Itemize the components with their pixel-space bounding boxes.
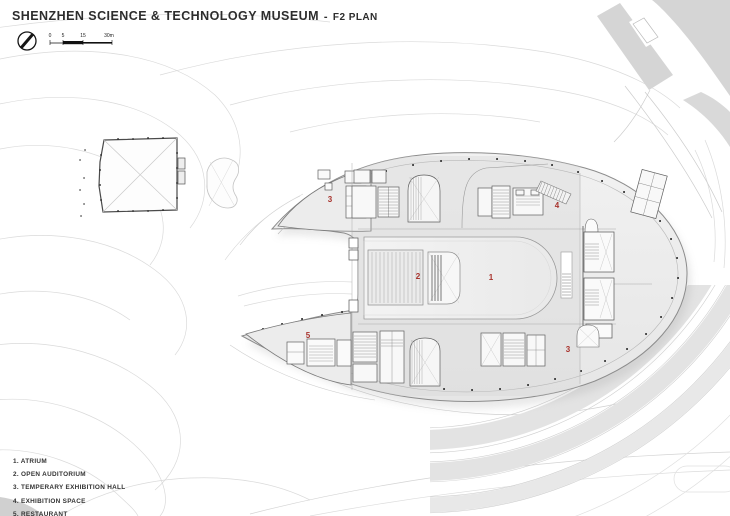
plan-marker-exhibition-space: 4 [555, 202, 559, 210]
drawing-title: SHENZHEN SCIENCE & TECHNOLOGY MUSEUM - F… [12, 7, 378, 25]
scale-bar: 0 5 15 30m [49, 33, 114, 45]
legend-item-restaurant: 5. RESTAURANT [13, 508, 125, 516]
title-separator: - [324, 11, 328, 23]
title-main: SHENZHEN SCIENCE & TECHNOLOGY MUSEUM [12, 9, 319, 23]
legend-item-atrium: 1. ATRIUM [13, 455, 125, 468]
plan-marker-atrium: 1 [489, 274, 493, 282]
scale-label-5: 5 [62, 33, 65, 39]
legend-item-exhibition-space: 4. EXHIBITION SPACE [13, 495, 125, 508]
north-arrow-icon [18, 32, 36, 50]
open-auditorium [368, 250, 460, 305]
legend-item-open-auditorium: 2. OPEN AUDITORIUM [13, 468, 125, 481]
slab-edge-boxes [349, 238, 358, 312]
floor-plan-canvas: 0 5 15 30m SHENZHEN SCIENCE & TECHNOLOGY… [0, 0, 730, 516]
plan-marker-temporary-exhibition-lower: 3 [566, 346, 570, 354]
plan-marker-open-auditorium: 2 [416, 273, 420, 281]
right-core-stack [583, 219, 614, 338]
plan-marker-restaurant: 5 [306, 332, 310, 340]
scale-label-15: 15 [80, 33, 86, 39]
annex-building [80, 138, 185, 216]
scale-label-0: 0 [49, 33, 52, 39]
legend: 1. ATRIUM 2. OPEN AUDITORIUM 3. TEMPERAR… [13, 455, 125, 516]
title-suffix: F2 PLAN [333, 12, 378, 23]
site-plan-drawing: 0 5 15 30m [0, 0, 730, 516]
annex-site-dots [80, 150, 85, 216]
plan-marker-temporary-exhibition-upper: 3 [328, 196, 332, 204]
escalator [561, 252, 572, 298]
restaurant-rooms [287, 339, 351, 366]
kidney-pond [207, 158, 239, 208]
scale-label-30m: 30m [104, 33, 114, 39]
legend-item-temporary-exhibition-hall: 3. TEMPERARY EXHIBITION HALL [13, 481, 125, 494]
